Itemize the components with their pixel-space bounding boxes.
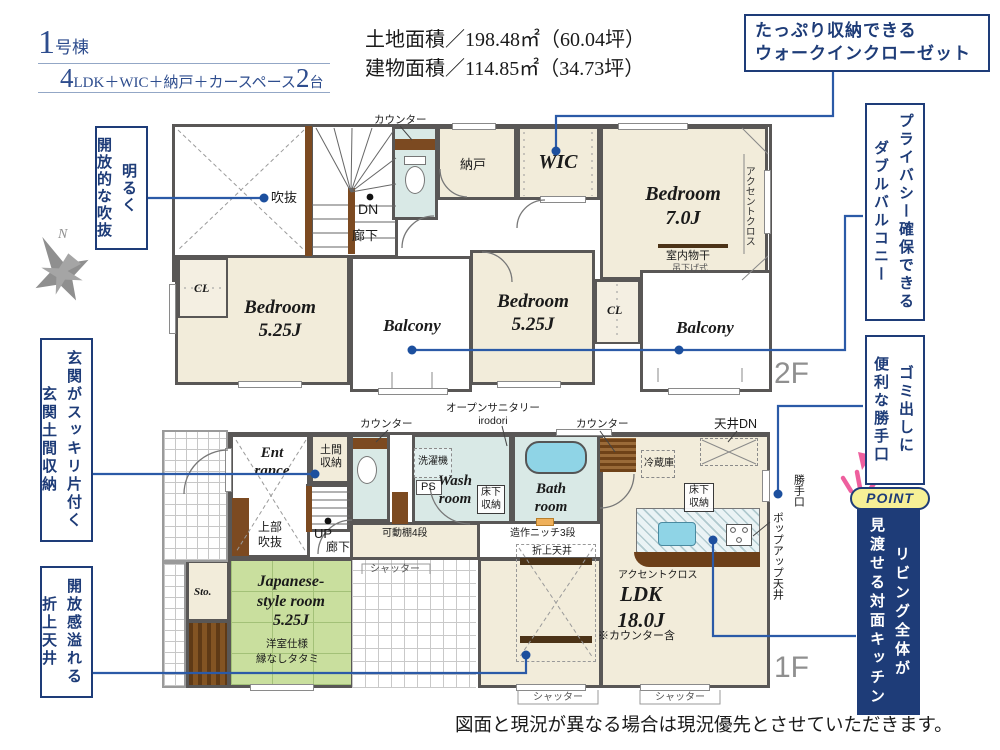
callout-wic: たっぷり収納できる ウォークインクローゼット	[744, 14, 990, 72]
kitchen-stove	[726, 524, 752, 546]
shutter-label-terrace: シャッター	[370, 564, 420, 576]
building-number: 1	[38, 24, 55, 61]
niche	[536, 518, 554, 526]
katteguchi-label: 勝手口	[791, 474, 804, 520]
wic-label: WIC	[528, 150, 588, 174]
kitchen-front-counter	[634, 552, 760, 567]
window-gap	[640, 684, 710, 691]
oriage-bar-top	[520, 558, 592, 565]
bedroom525-right-label: Bedroom 5.25J	[483, 290, 583, 336]
toilet-bowl-2f	[405, 166, 425, 194]
katteguchi-door-gap	[762, 470, 770, 502]
ldk-note-label: ※カウンター含	[598, 630, 675, 643]
car-space-strip	[162, 562, 186, 688]
dn-label: DN	[358, 201, 378, 218]
window-gap	[225, 448, 232, 492]
floor1-label: 1F	[774, 650, 809, 687]
underfloor-storage-kitchen: 床下 収納	[684, 483, 714, 512]
stairs-1f	[306, 484, 350, 532]
window-gap	[764, 170, 771, 234]
open-sanitary-label: オープンサニタリー irodori	[446, 402, 540, 428]
balcony-left-label: Balcony	[372, 316, 452, 337]
nando-label: 納戸	[460, 157, 486, 173]
compass-n-label: N	[58, 226, 67, 243]
window-gap	[169, 284, 176, 334]
ceiling-dn-label: 天井DN	[714, 417, 757, 432]
oriage-bar-bottom	[520, 636, 592, 643]
hallway-label-2f: 廊下	[352, 228, 378, 244]
underfloor-storage-wash: 床下 収納	[477, 485, 505, 514]
void-label-2f: 吹抜	[271, 190, 297, 206]
sliding-door-wic	[540, 196, 586, 203]
fridge-label: 冷蔵庫	[644, 458, 674, 470]
accent-cloth-label-2f: アクセントクロス	[742, 166, 754, 258]
floor2-label: 2F	[774, 356, 809, 393]
building-area: 建物面積／114.85㎡（34.73坪）	[365, 57, 644, 81]
callout-oriage-ceiling: 開放感溢れる 折上天井	[40, 566, 93, 698]
hallway-label-1f: 廊下	[326, 540, 350, 555]
entrance-label: Ent rance	[242, 444, 302, 481]
oriage-label: 折上天井	[532, 546, 572, 558]
counter-label-toilet-1f: カウンター	[360, 418, 413, 431]
shutter-label-left: シャッター	[533, 692, 583, 704]
layout-summary: 4LDK＋WIC＋納戸＋カースペース2台	[60, 62, 323, 95]
callout-void: 明るく 開放的な吹抜	[95, 126, 148, 250]
shutter-label-right: シャッター	[655, 692, 705, 704]
balcony-right-label: Balcony	[660, 318, 750, 339]
callout-point-kitchen: リビング全体が 見渡せる対面キッチン	[857, 509, 920, 715]
hanging-type-label: 吊下げ式	[672, 263, 708, 274]
closet-label-left: CL	[194, 281, 209, 296]
bathtub	[525, 441, 587, 474]
popup-ceiling-label: ポップアップ天井	[770, 512, 783, 608]
upper-void-label: 上部 吹抜	[254, 520, 286, 549]
counter-label-mid-1f: カウンター	[576, 418, 629, 431]
indoor-drying-label: 室内物干	[666, 250, 710, 263]
car-space	[162, 430, 228, 562]
disclaimer: 図面と現況が異なる場合は現況優先とさせていただきます。	[455, 714, 953, 737]
window-gap	[378, 388, 448, 395]
washer-label: 洗濯機	[418, 456, 448, 468]
bedroom525-left-label: Bedroom 5.25J	[220, 296, 340, 342]
wall-stairs-2f	[305, 126, 312, 256]
washroom-label: Wash room	[432, 472, 478, 509]
toilet-counter-2f	[395, 139, 435, 150]
japanese-room-label: Japanese- style room 5.25J	[238, 572, 344, 631]
toilet-fixture-2f	[404, 156, 426, 165]
callout-katteguchi: ゴミ出しに 便利な勝手口	[865, 335, 925, 485]
bedroom7-label: Bedroom 7.0J	[618, 182, 748, 231]
niche-label: 造作ニッチ3段	[510, 528, 576, 540]
callout-double-balcony: プライバシー確保できる ダブルバルコニー	[865, 103, 925, 321]
wood-deck	[186, 620, 230, 688]
floorplan-page: 1号棟 4LDK＋WIC＋納戸＋カースペース2台 土地面積／198.48㎡（60…	[0, 0, 1000, 750]
counter-label-2f: カウンター	[374, 114, 427, 127]
bathroom-label: Bath room	[526, 480, 576, 517]
shelf-4tier	[392, 492, 408, 524]
counter-mid	[600, 438, 636, 472]
toilet-counter-1f	[353, 438, 387, 449]
land-area: 土地面積／198.48㎡（60.04坪）	[365, 28, 645, 52]
jroom-note1-label: 洋室仕様	[266, 638, 308, 651]
point-badge: POINT	[850, 487, 930, 510]
window-gap	[497, 381, 561, 388]
window-gap	[250, 684, 314, 691]
ldk-label: LDK 18.0J	[604, 582, 678, 633]
toilet-bowl-1f	[357, 456, 377, 484]
callout-genkan-storage: 玄関がスッキリ片付く 玄関土間収納	[40, 338, 93, 542]
building-title: 1号棟	[38, 22, 89, 63]
window-gap	[668, 388, 740, 395]
shoe-cabinet	[232, 498, 249, 556]
window-gap	[516, 684, 586, 691]
accent-cloth-label-1f: アクセントクロス	[618, 570, 698, 582]
shelf-label: 可動棚4段	[382, 528, 428, 540]
window-gap	[618, 123, 688, 130]
kitchen-sink	[658, 522, 696, 546]
window-gap	[452, 123, 496, 130]
closet-label-right: CL	[607, 303, 622, 318]
sto-label: Sto.	[194, 586, 211, 599]
ceiling-dn-area	[700, 438, 758, 466]
window-gap	[238, 381, 302, 388]
tile-terrace	[352, 560, 476, 688]
jroom-note2-label: 縁なしタタミ	[256, 653, 319, 666]
doma-storage-label: 土間 収納	[316, 444, 346, 471]
